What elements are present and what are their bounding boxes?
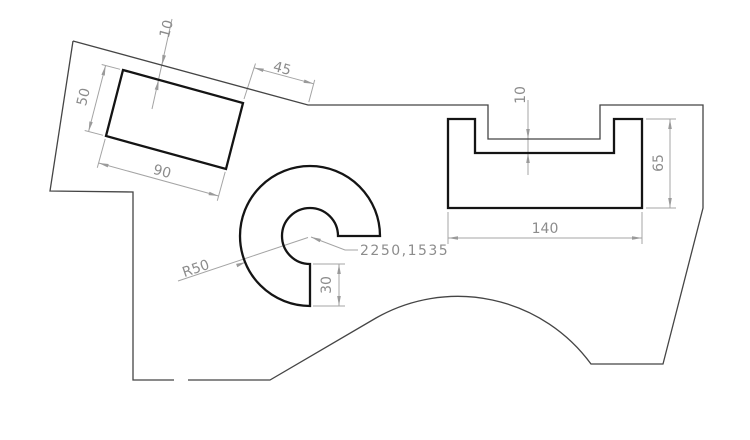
dim-rect-width-arrow-right <box>209 192 219 196</box>
dim-slope-ext-left <box>244 64 256 100</box>
dim-sector-label: 30 <box>319 276 335 294</box>
dim-channel-height-arrow-top <box>668 119 672 129</box>
u-channel-feature <box>448 119 642 208</box>
dim-slope-arrow-left <box>254 68 264 72</box>
dim-radius-label: R50 <box>180 257 211 281</box>
dim-rect-height-arrow-top <box>101 66 105 76</box>
dim-rect-offset-label: 10 <box>157 18 177 39</box>
dim-slope-arrow-right <box>304 80 314 84</box>
dim-channel-height-label: 65 <box>651 154 667 172</box>
center-point-arrow <box>311 237 321 242</box>
dim-slot-gap-arrow-bottom <box>526 153 530 163</box>
dim-channel-width-label: 140 <box>532 221 559 237</box>
dim-rect-height-ext-bottom <box>85 131 103 136</box>
dimension-layer: 50 90 10 45 R50 2250,1535 30 <box>74 18 676 306</box>
rotated-rectangle-feature <box>106 70 243 169</box>
c-sector-feature <box>240 166 380 306</box>
dim-sector-arrow-top <box>337 264 341 274</box>
dim-channel-width-arrow-left <box>448 236 458 240</box>
dim-rect-offset-arrow-bottom <box>155 80 159 90</box>
dim-slot-gap-arrow-top <box>526 129 530 139</box>
dim-rect-width-label: 90 <box>151 162 172 182</box>
part-outline-main <box>73 41 703 380</box>
cad-drawing-canvas: 50 90 10 45 R50 2250,1535 30 <box>0 0 750 440</box>
dim-channel-height-arrow-bottom <box>668 198 672 208</box>
dim-rect-offset-arrow-top <box>162 55 166 65</box>
dim-channel-width-arrow-right <box>632 236 642 240</box>
dim-slot-gap-label: 10 <box>513 86 529 104</box>
center-point-label: 2250,1535 <box>360 243 449 259</box>
dim-rect-width-ext-right <box>217 172 225 201</box>
dim-rect-width-arrow-left <box>99 163 109 167</box>
dim-rect-height-label: 50 <box>74 86 94 107</box>
cad-drawing: 50 90 10 45 R50 2250,1535 30 <box>0 0 750 440</box>
dim-rect-height-arrow-bottom <box>89 121 93 131</box>
dim-slope-label: 45 <box>271 59 292 79</box>
dim-sector-arrow-bottom <box>337 296 341 306</box>
